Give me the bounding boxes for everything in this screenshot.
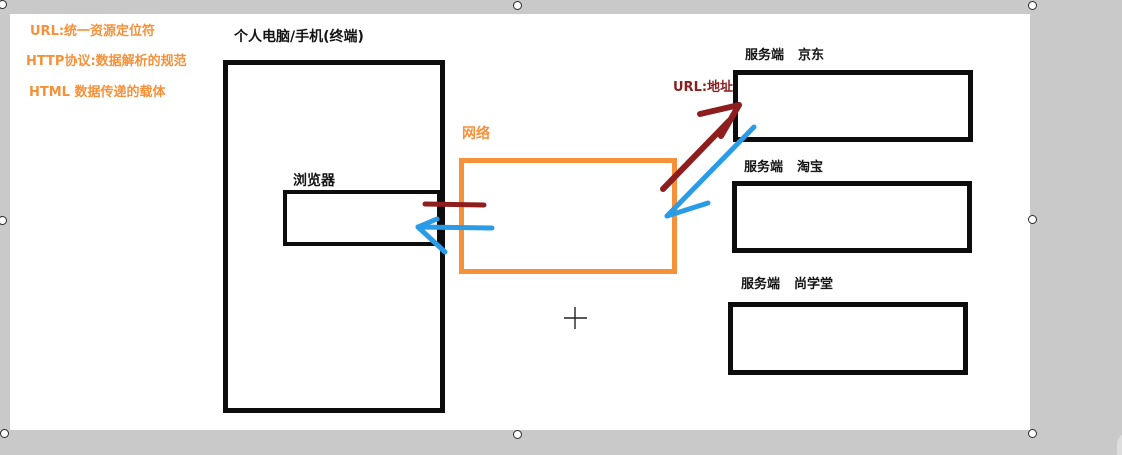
note-html: HTML 数据传递的载体: [29, 81, 166, 100]
network-label: 网络: [462, 126, 490, 142]
resize-handle-top-right[interactable]: [1028, 1, 1037, 10]
browser-label: 浏览器: [293, 173, 335, 189]
resize-handle-bottom-left[interactable]: [0, 429, 9, 438]
server-prefix: 服务端: [745, 48, 784, 63]
server-name: 淘宝: [797, 161, 823, 176]
server-name: 京东: [798, 49, 824, 64]
server-name: 尚学堂: [794, 278, 833, 293]
browser-box: [283, 190, 441, 246]
resize-handle-middle-right[interactable]: [1028, 215, 1037, 224]
note-http: HTTP协议:数据解析的规范: [26, 50, 187, 69]
network-box: [459, 158, 677, 274]
server-box-jingdong: [733, 70, 973, 142]
corner-widget-edge: [1117, 431, 1122, 455]
resize-handle-bottom-right[interactable]: [1028, 429, 1037, 438]
server-box-taobao: [732, 181, 972, 253]
server-prefix: 服务端: [744, 160, 783, 175]
resize-handle-top-left[interactable]: [0, 0, 7, 9]
resize-handle-middle-left[interactable]: [0, 216, 7, 225]
server-box-shangxuetang: [728, 302, 968, 375]
server-label-shangxuetang: 服务端尚学堂: [741, 278, 833, 293]
server-prefix: 服务端: [741, 277, 780, 292]
url-address-label: URL:地址: [673, 81, 733, 96]
resize-handle-bottom-center[interactable]: [513, 430, 522, 439]
server-label-jingdong: 服务端京东: [745, 49, 824, 64]
app-window: URL:统一资源定位符 HTTP协议:数据解析的规范 HTML 数据传递的载体 …: [0, 0, 1122, 455]
note-url: URL:统一资源定位符: [30, 20, 155, 39]
server-label-taobao: 服务端淘宝: [744, 161, 823, 176]
resize-handle-top-center[interactable]: [513, 1, 522, 10]
terminal-label: 个人电脑/手机(终端): [234, 29, 364, 45]
